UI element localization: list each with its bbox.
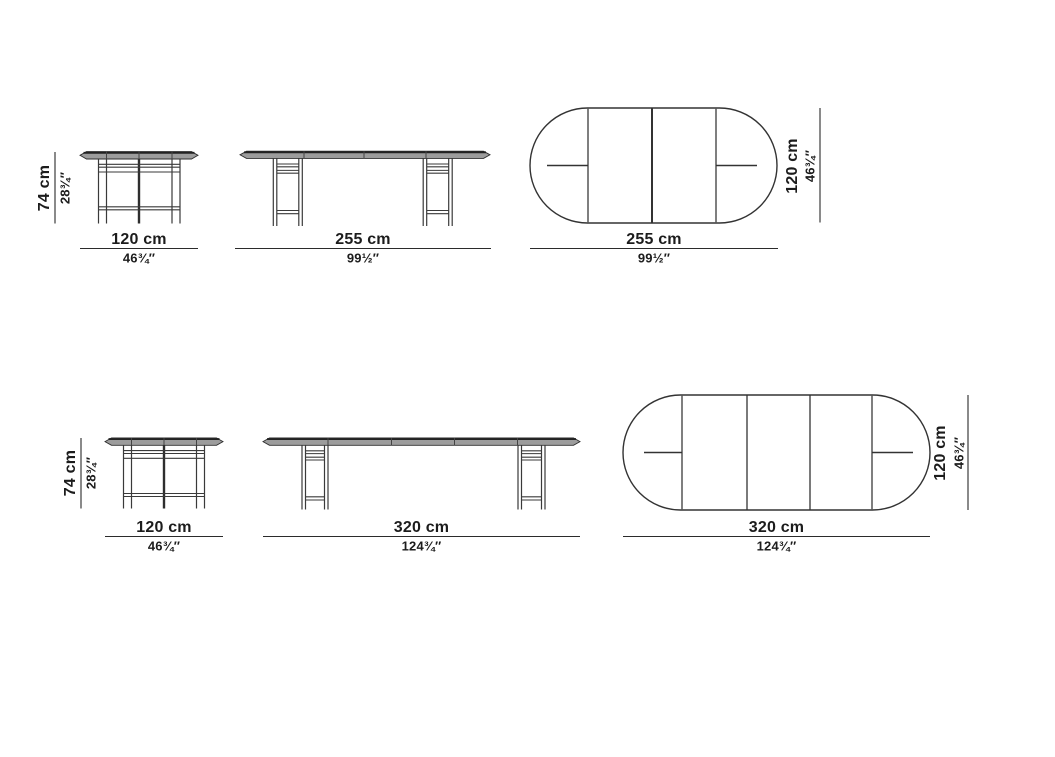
width-dim-cm-label: 120 cm [136,520,191,536]
width-dim-cm-label: 255 cm [335,232,390,248]
width-dim-in-label: 124¾″ [757,540,797,553]
height-dim-in-label: 28¾″ [58,171,71,203]
width-dim-in-label: 99½″ [347,252,379,265]
width-dim-cm-label: 320 cm [749,520,804,536]
depth-dim-cm-label: 120 cm [785,138,801,193]
height-dim-in-label: 28¾″ [84,457,97,489]
width-dim-in-label: 124¾″ [402,540,442,553]
trestle-rungs-right [427,164,449,214]
depth-dim-in-label: 46¾″ [804,149,817,181]
trestle-rungs-left [277,164,299,214]
extended-table-top-drawing-255 [530,108,820,249]
leaf-tangent-lines [682,395,872,510]
width-dim-in-label: 46¾″ [123,252,155,265]
width-dim-cm-label: 120 cm [111,232,166,248]
dimension-drawing-sheet: 74 cm 28¾″ 120 cm 46¾″ 255 cm 99½″ 255 c… [0,0,1055,757]
width-dim-cm-label: 255 cm [626,232,681,248]
width-dim-in-label: 46¾″ [148,540,180,553]
depth-dim-in-label: 46¾″ [952,436,965,468]
trestle-rungs-left [306,451,325,500]
line-artwork [0,0,1055,757]
height-dim-cm-label: 74 cm [63,450,79,496]
width-dim-in-label: 99½″ [638,252,670,265]
trestle-legs-left [273,158,302,226]
trestle-legs-right [423,158,452,226]
extended-table-top-drawing-320 [623,395,968,537]
leaf-divider-lines [747,395,810,510]
trestle-rungs-right [522,451,542,500]
width-dim-cm-label: 320 cm [394,520,449,536]
depth-dim-cm-label: 120 cm [933,425,949,480]
height-dim-cm-label: 74 cm [37,164,53,210]
